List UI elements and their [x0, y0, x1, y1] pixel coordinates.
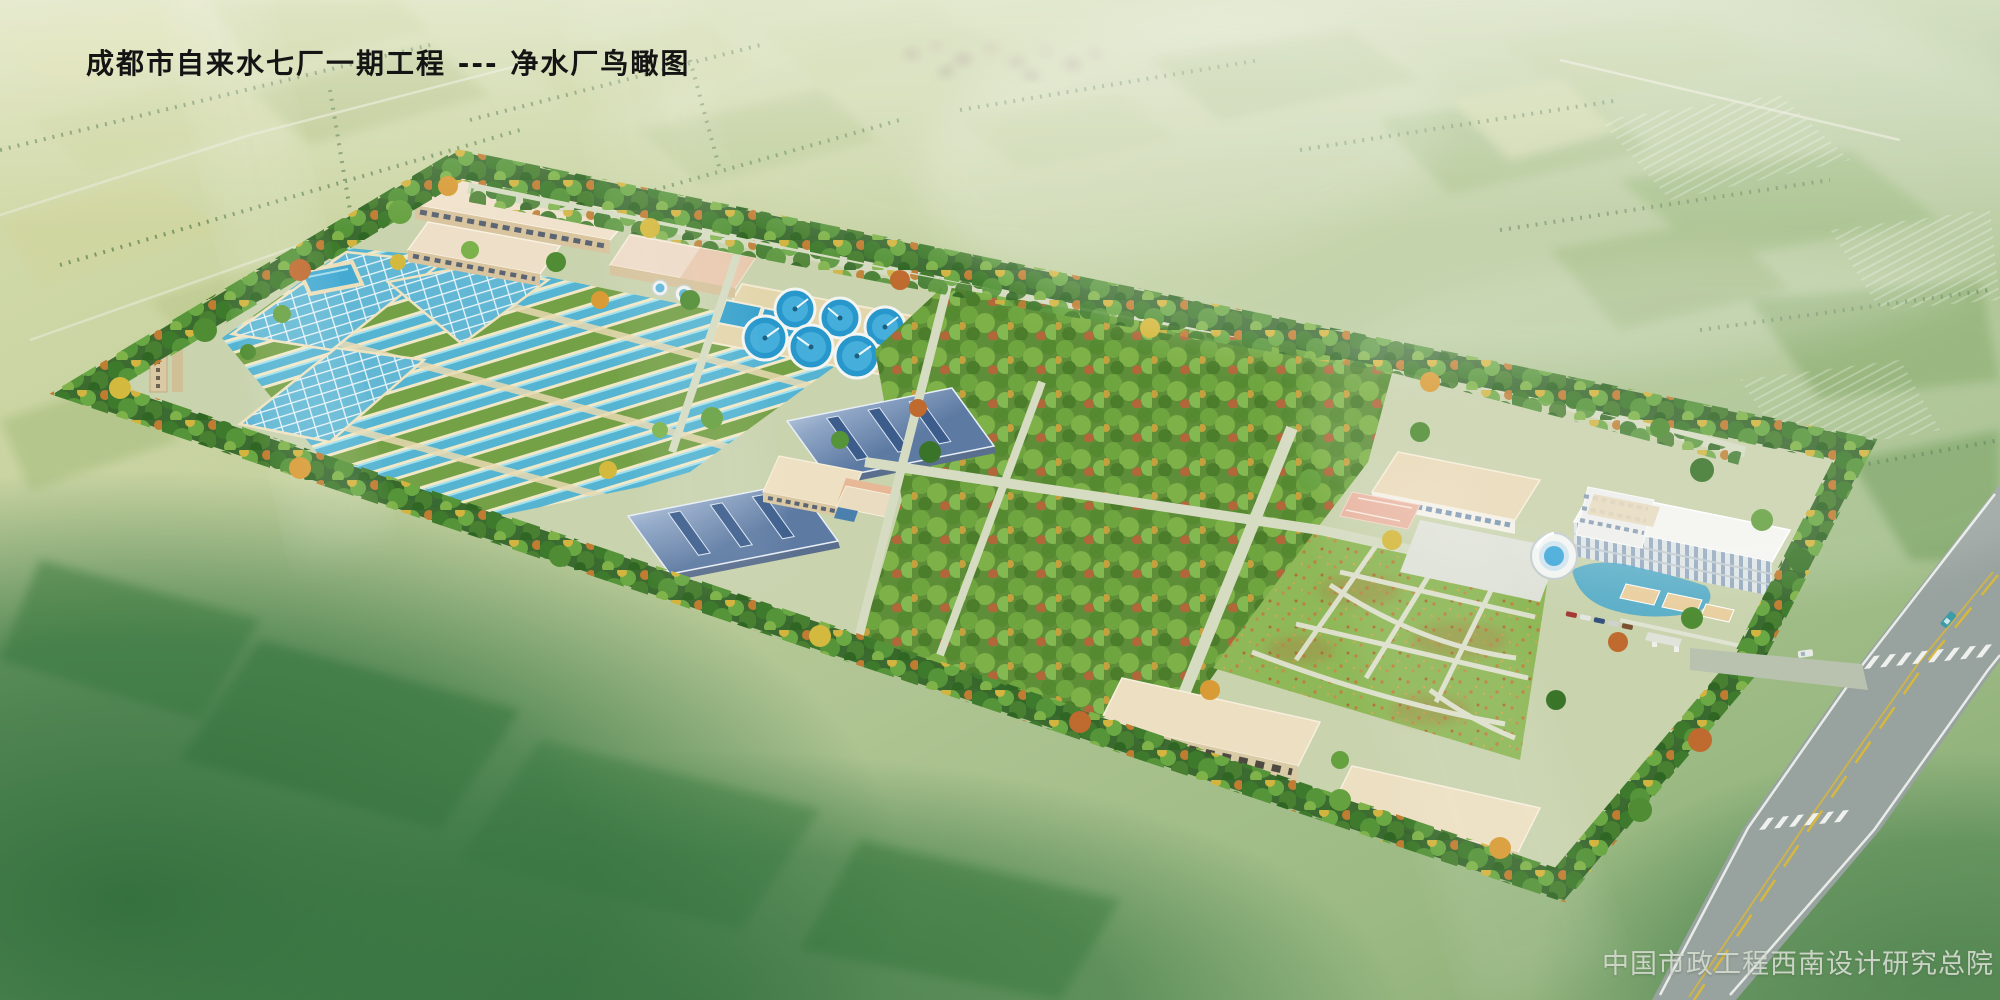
drawing-title: 成都市自来水七厂一期工程 --- 净水厂鸟瞰图	[86, 42, 690, 82]
birdseye-rendering: 成都市自来水七厂一期工程 --- 净水厂鸟瞰图 中国市政工程西南设计研究总院	[0, 0, 2000, 1000]
design-institute-credit: 中国市政工程西南设计研究总院	[1602, 942, 1994, 981]
rendering-canvas	[0, 0, 2000, 1000]
